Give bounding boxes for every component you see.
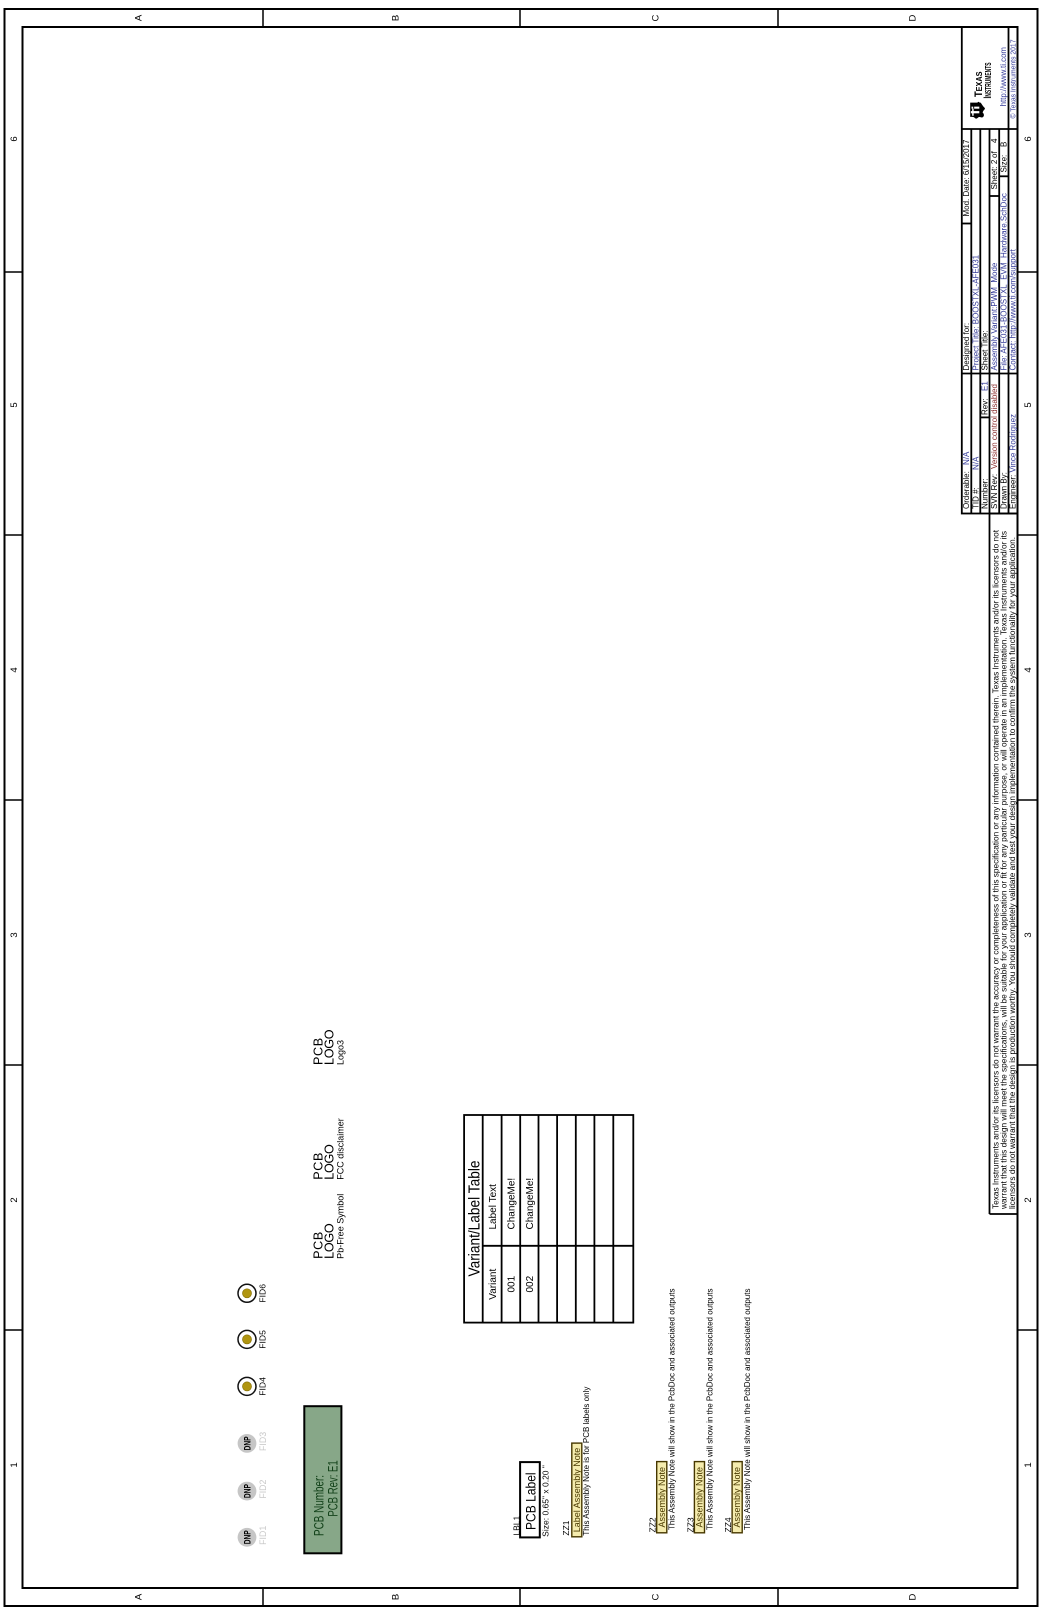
- svg-text:6: 6: [9, 136, 20, 141]
- svg-text:Size:B: Size:B: [999, 142, 1008, 173]
- svg-text:3: 3: [9, 932, 20, 937]
- svg-text:INSTRUMENTS: INSTRUMENTS: [982, 62, 994, 98]
- svg-text:DNP: DNP: [243, 1484, 253, 1498]
- svg-text:D: D: [907, 1593, 918, 1600]
- svg-text:DNP: DNP: [243, 1530, 253, 1544]
- svg-text:C: C: [650, 14, 661, 21]
- svg-text:Sheet Title:: Sheet Title:: [980, 330, 989, 370]
- svg-text:Size: 0.65" x 0.20 ": Size: 0.65" x 0.20 ": [540, 1465, 550, 1537]
- svg-text:001: 001: [507, 1275, 518, 1292]
- svg-text:ChangeMe!: ChangeMe!: [507, 1178, 518, 1230]
- svg-text:PCB Label: PCB Label: [523, 1472, 538, 1530]
- svg-text:Project Title: BOOSTXL-AFE031: Project Title: BOOSTXL-AFE031: [971, 254, 980, 370]
- svg-text:File: AFE031-BOOSTXL_EVM_Hardw: File: AFE031-BOOSTXL_EVM_Hardware.SchDoc: [999, 193, 1008, 370]
- svg-text:This Assembly Note will show i: This Assembly Note will show in the PcbD…: [668, 1289, 677, 1530]
- svg-text:Assembly Note: Assembly Note: [657, 1467, 667, 1528]
- svg-text:C: C: [650, 1593, 661, 1600]
- svg-text:D: D: [907, 14, 918, 21]
- svg-text:Contact: http://www.ti.com/sup: Contact: http://www.ti.com/support: [1008, 248, 1017, 370]
- svg-text:http://www.ti.com: http://www.ti.com: [999, 47, 1008, 107]
- svg-text:FID4: FID4: [258, 1377, 268, 1396]
- svg-text:This Assembly Note will show i: This Assembly Note will show in the PcbD…: [705, 1289, 714, 1530]
- svg-text:Pb-Free Symbol: Pb-Free Symbol: [335, 1194, 345, 1259]
- svg-text:4: 4: [1023, 667, 1034, 672]
- svg-text:FCC disclaimer: FCC disclaimer: [335, 1118, 345, 1180]
- svg-text:B: B: [390, 1594, 401, 1600]
- svg-text:Mod. Date: 6/15/2017: Mod. Date: 6/15/2017: [962, 139, 971, 216]
- svg-text:Label Text: Label Text: [488, 1184, 499, 1230]
- svg-text:Engineer: Vince Rodriguez: Engineer: Vince Rodriguez: [1008, 414, 1017, 509]
- svg-text:© Texas Instruments 2017: © Texas Instruments 2017: [1008, 40, 1017, 119]
- svg-text:FID2: FID2: [258, 1479, 268, 1498]
- svg-text:A: A: [133, 1593, 144, 1600]
- svg-text:FID6: FID6: [258, 1284, 268, 1303]
- svg-text:3: 3: [1023, 932, 1034, 937]
- svg-text:This Assembly Note is for PCB: This Assembly Note is for PCB labels onl…: [582, 1387, 591, 1536]
- svg-text:Assembly Note: Assembly Note: [732, 1467, 742, 1528]
- svg-text:DNP: DNP: [243, 1436, 253, 1450]
- svg-text:Assembly Variant:PWM_Mode: Assembly Variant:PWM_Mode: [990, 262, 999, 370]
- svg-text:5: 5: [9, 402, 20, 407]
- svg-text:B: B: [390, 15, 401, 21]
- svg-text:Orderable:N/A: Orderable:N/A: [962, 451, 971, 509]
- svg-text:FID1: FID1: [258, 1526, 268, 1545]
- svg-text:5: 5: [1023, 402, 1034, 407]
- svg-text:SVN Rev:Version control disabl: SVN Rev:Version control disabled: [990, 384, 999, 509]
- svg-text:Assembly Note: Assembly Note: [695, 1467, 705, 1528]
- svg-text:1: 1: [9, 1462, 20, 1467]
- svg-text:002: 002: [525, 1275, 536, 1292]
- svg-text:licensors do not warrant that: licensors do not warrant that the design…: [1008, 537, 1017, 1209]
- svg-text:1: 1: [1023, 1462, 1034, 1467]
- svg-text:2: 2: [9, 1197, 20, 1202]
- svg-text:2: 2: [1023, 1197, 1034, 1202]
- svg-text:FID3: FID3: [258, 1432, 268, 1451]
- svg-text:Variant: Variant: [488, 1269, 499, 1300]
- svg-text:FID5: FID5: [258, 1330, 268, 1349]
- svg-text:ChangeMe!: ChangeMe!: [525, 1178, 536, 1230]
- svg-text:Number:: Number:: [980, 478, 989, 509]
- svg-text:This Assembly Note will show i: This Assembly Note will show in the PcbD…: [743, 1289, 752, 1530]
- svg-text:6: 6: [1023, 136, 1034, 141]
- svg-text:Label Assembly Note: Label Assembly Note: [572, 1448, 582, 1533]
- svg-text:PCB Rev: E1: PCB Rev: E1: [324, 1460, 340, 1516]
- svg-text:Variant/Label Table: Variant/Label Table: [466, 1161, 483, 1277]
- svg-text:A: A: [133, 14, 144, 21]
- svg-text:ZZ1: ZZ1: [561, 1520, 571, 1535]
- svg-text:Drawn By:: Drawn By:: [999, 472, 1008, 509]
- svg-text:4: 4: [9, 667, 20, 672]
- svg-text:Logo3: Logo3: [335, 1040, 345, 1065]
- svg-text:Designed for:: Designed for:: [962, 323, 971, 371]
